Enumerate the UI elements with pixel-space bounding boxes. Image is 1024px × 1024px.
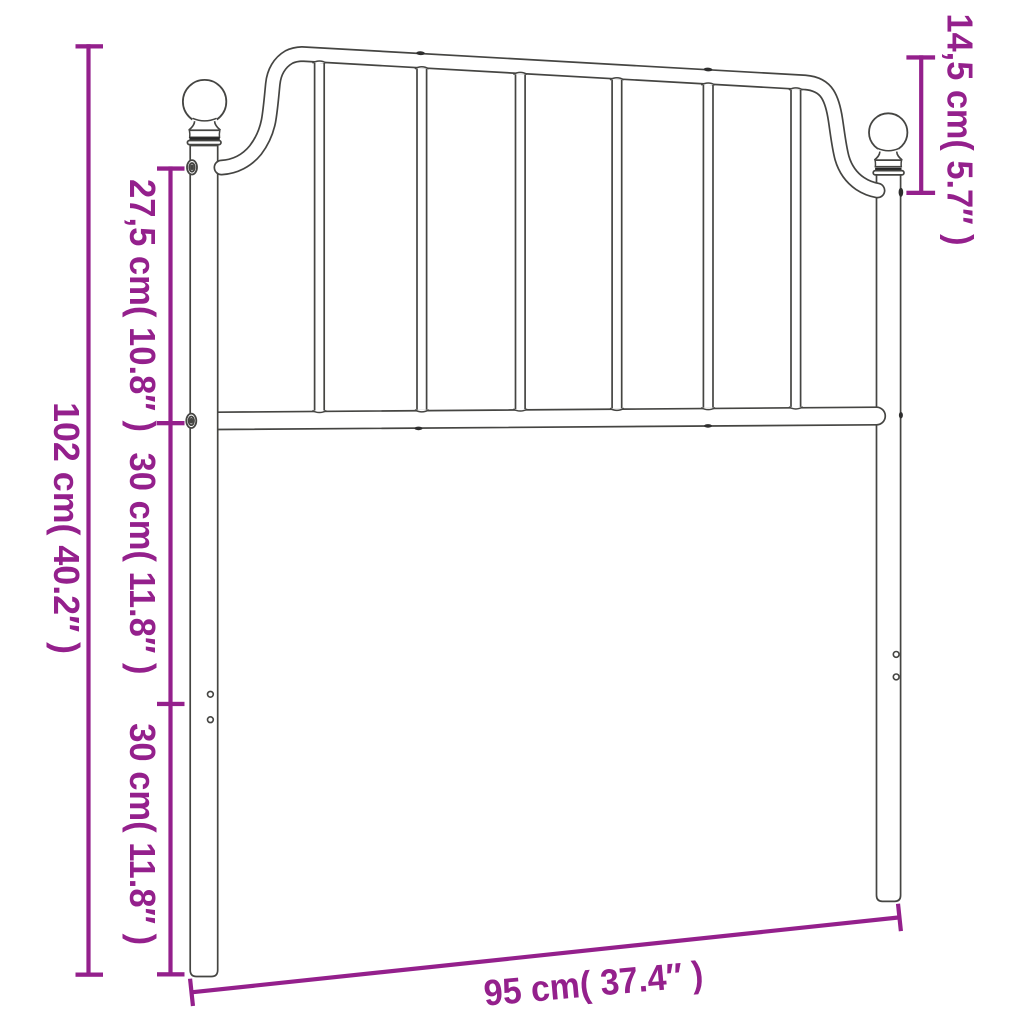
svg-text:102 cm( 40.2″ ): 102 cm( 40.2″ ) (46, 402, 87, 654)
svg-text:30 cm( 11.8″ ): 30 cm( 11.8″ ) (122, 723, 163, 945)
svg-text:27,5 cm( 10.8″ ): 27,5 cm( 10.8″ ) (122, 179, 163, 432)
svg-text:14,5 cm( 5.7″ ): 14,5 cm( 5.7″ ) (940, 14, 981, 246)
svg-text:30 cm( 11.8″ ): 30 cm( 11.8″ ) (122, 453, 163, 675)
